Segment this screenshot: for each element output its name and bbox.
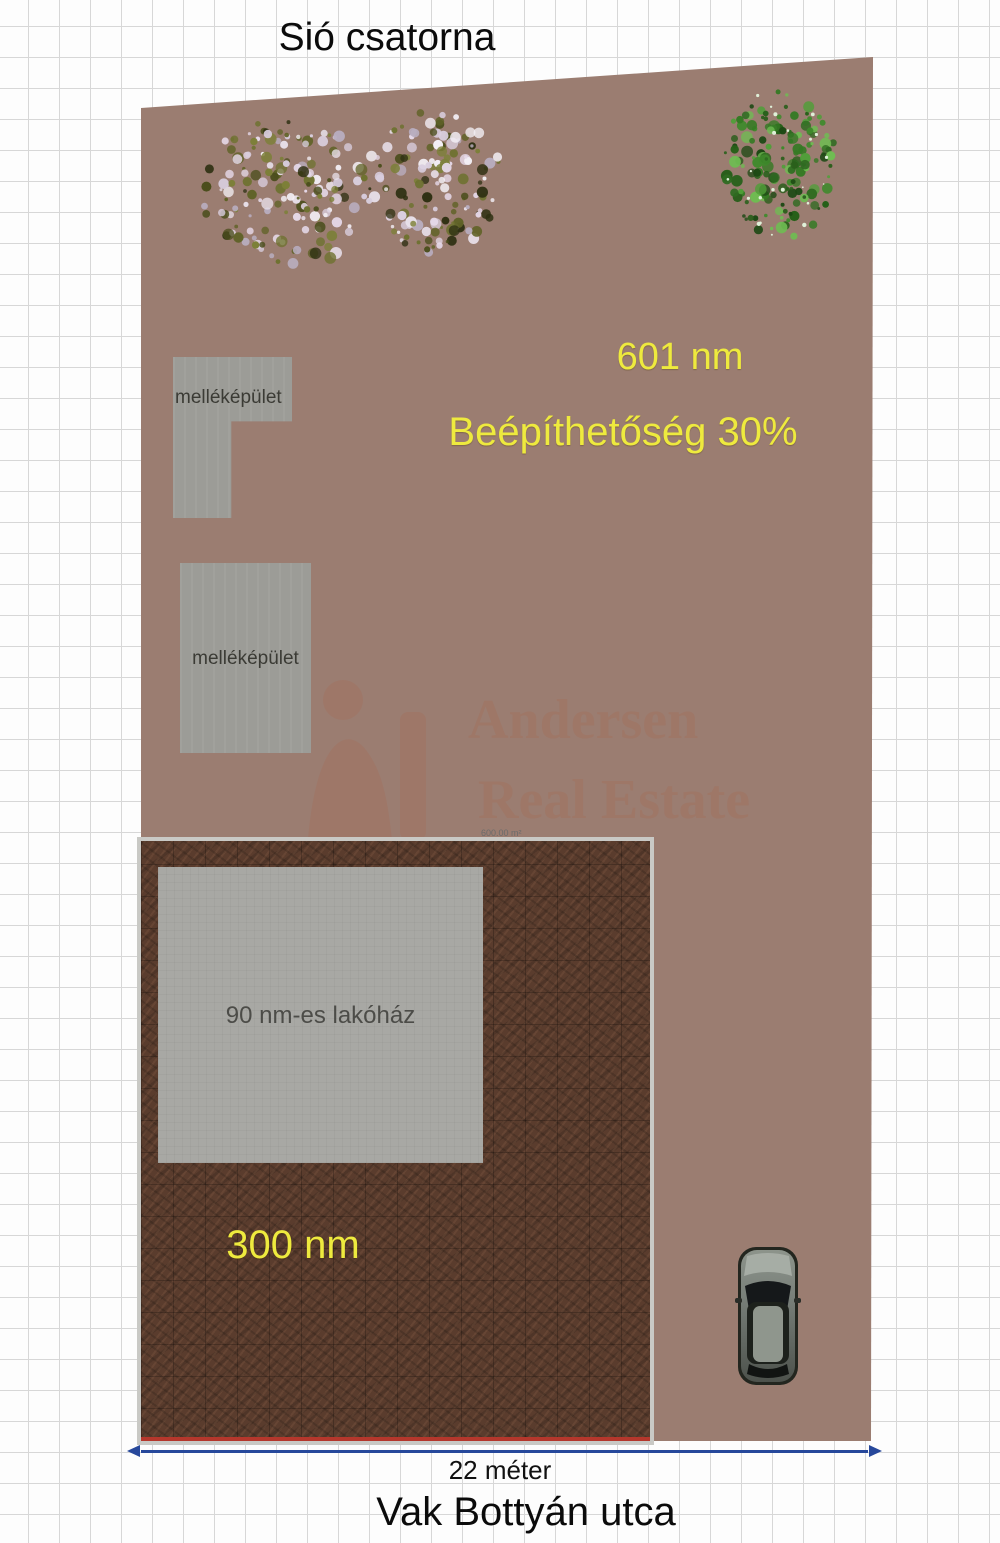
inner-plot-area-label: 300 nm — [226, 1223, 359, 1268]
outbuilding-2-label: melléképület — [192, 648, 299, 670]
car-icon — [735, 1246, 801, 1386]
house: 90 nm-es lakóház — [158, 867, 483, 1163]
plot-area-label: 601 nm — [617, 336, 744, 379]
outbuilding-2: melléképület — [180, 563, 311, 753]
street-name-label: Vak Bottyán utca — [376, 1490, 675, 1535]
plot-area-detail-label: 600.00 m² — [481, 828, 522, 838]
canal-title: Sió csatorna — [279, 16, 496, 60]
width-dimension-label: 22 méter — [449, 1455, 552, 1486]
site-plan-page: { "header": { "title": "Sió csatorna" },… — [0, 0, 1000, 1543]
outbuilding-1-label: melléképület — [175, 387, 282, 409]
house-label: 90 nm-es lakóház — [226, 1002, 415, 1030]
width-dimension-arrow — [141, 1450, 868, 1453]
buildability-label: Beépíthetőség 30% — [448, 410, 797, 455]
